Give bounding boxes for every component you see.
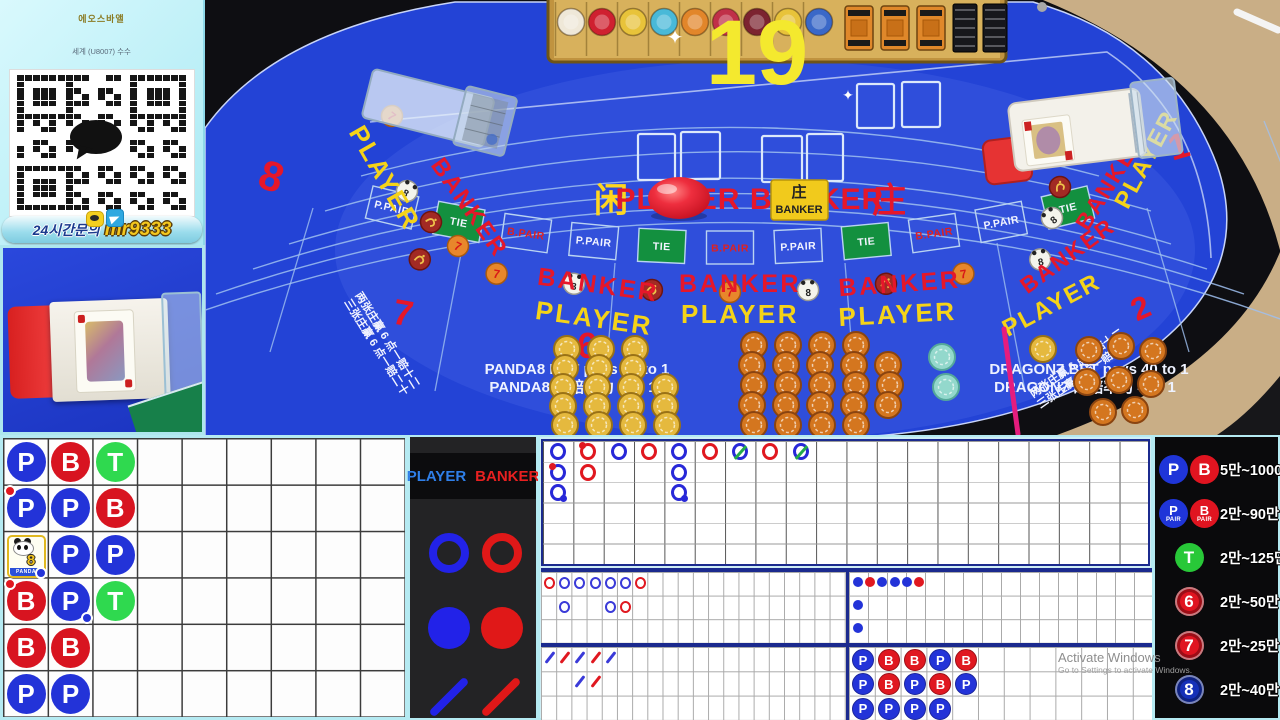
tray-plaque [881,6,909,50]
legend-banker-slash-icon [480,676,521,717]
watermark-line1: Activate Windows [1058,650,1253,665]
ask-road-p: P [929,649,951,671]
big-road-player [550,464,566,481]
big-road-banker [580,443,596,460]
small-road-cell [605,651,616,664]
svg-text:庄: 庄 [791,183,806,201]
bead-cell-p: P [7,442,46,482]
banker-pair-dot [35,567,47,579]
bead-cell-p: P [51,488,90,528]
legend-banker-label: BANKER [475,468,539,485]
mini-bead-cell [902,577,912,587]
big-eye-cell [620,601,631,613]
chat-bubble-icon [70,120,122,154]
big-road-banker [580,464,596,481]
bet-chip [1138,371,1164,397]
telegram-icon [106,209,124,227]
player-marker [648,177,710,221]
bead-cell-panda8: 8PANDA [7,535,46,578]
svg-text:B.PAIR: B.PAIR [711,243,749,255]
banker-plaque: 庄 BANKER [771,180,828,220]
road-legend-panel: PLAYER BANKER [408,435,538,720]
bead-cell-b: B [51,442,90,482]
svg-text:TIE: TIE [653,240,671,253]
bet-chip [1074,369,1100,395]
face-card-art [85,321,125,382]
pair-dot [579,442,586,449]
ask-road-p: P [852,673,874,695]
table-video: P.PAIRTIEB.PAIRP.PAIRTIEB.PAIRP.PAIRTIEB… [205,0,1280,435]
tray-chip-stack [983,4,1007,52]
small-road-cell [545,651,556,664]
mini-bead-cell [853,577,863,587]
legend-banker-dot-icon [481,607,523,649]
bet-chip [875,392,901,418]
player-pair-dot [4,485,16,497]
limit-icon-b: B [1190,455,1219,484]
limit-icon-6: 6 [1175,587,1204,616]
qr-code [10,70,194,216]
legend-banker-ring-icon [482,533,522,573]
mini-bead-cell [853,623,863,633]
watermark-line2: Go to Settings to activate Windows. [1058,665,1253,675]
bead-cell-b: B [7,581,46,621]
bet-limits-panel: PB5만~1000만PPAIRBPAIR2만~90만T2만~125만62만~50… [1153,435,1280,720]
dealing-shoe [49,298,170,402]
promo-panel: 에오스바앨 세계 (U8007) 수수 24시간문의 mr9333 [0,0,205,245]
big-eye-cell [620,577,631,589]
player-pair-dot [4,578,16,590]
big-eye-road [541,572,846,643]
tray-plaque [845,6,873,50]
big-road-player [793,443,809,460]
big-eye-cell [590,577,601,589]
bet-chip [586,412,612,435]
tray-plaque [917,6,945,50]
svg-text:PLAYER: PLAYER [681,299,799,329]
small-road-cell [575,675,586,688]
ask-road-p: P [904,698,926,720]
bet-chip [1090,399,1116,425]
bead-cell-p: P [51,535,90,575]
road-divider-vertical [846,572,849,720]
big-road-player [550,484,566,501]
card-pip [78,315,85,323]
big-road-banker [641,443,657,460]
limit-range: 2만~50만 [1220,591,1279,612]
ask-road-b: B [904,649,926,671]
big-eye-cell [559,601,570,613]
big-eye-cell [559,577,570,589]
svg-text:8: 8 [805,288,812,299]
mini-bead-cell [865,577,875,587]
pair-dot [681,495,688,502]
bet-cell-tie: TIE [638,228,687,263]
bet-chip [654,412,680,435]
svg-text:TIE: TIE [857,235,876,249]
tray-chip-stack [953,4,977,52]
mini-bead-cell [914,577,924,587]
big-road-banker [762,443,778,460]
kakaotalk-icon [86,211,104,227]
ask-road-p: P [852,649,874,671]
limit-icon-p: P [1159,455,1188,484]
bet-chip [809,412,835,435]
big-road-player [671,464,687,481]
svg-text:P.PAIR: P.PAIR [780,240,816,254]
big-road-player [611,443,627,460]
shoe-closeup-video [0,245,205,435]
bead-cell-p: P [7,488,46,528]
limit-range: 2만~90만 [1220,503,1279,524]
mini-bead-cell [890,577,900,587]
limit-range: 5만~1000만 [1220,459,1280,480]
big-eye-cell [544,577,555,589]
big-eye-cell [605,577,616,589]
big-road [541,439,1150,566]
card-pip [125,379,132,387]
promo-subtitle: 세계 (U8007) 수수 [0,46,203,57]
stray-chip [1037,2,1047,12]
sparkle-icon: ✦ [667,27,684,49]
bet-chip [1076,337,1102,363]
small-road-cell [575,651,586,664]
big-road-player [671,484,687,501]
bead-cell-b: B [96,488,135,528]
limit-row: 62만~50만 [1155,579,1278,623]
banker-pair-dot [81,612,93,624]
bet-cell-bpair: B.PAIR [908,213,959,252]
bead-cell-b: B [51,628,90,668]
legend-player-label: PLAYER [407,468,466,485]
bead-cell-b: B [7,628,46,668]
svg-text:BANKER: BANKER [775,204,822,216]
legend-player-dot-icon [428,607,470,649]
big-road-player [671,443,687,460]
small-road-cell [590,675,601,688]
ask-road-p: P [904,673,926,695]
mini-bead-cell [853,600,863,610]
limit-icon-8: 8 [1175,675,1204,704]
big-road-player [550,443,566,460]
baccarat-stream-screen: 에오스바앨 세계 (U8007) 수수 24시간문의 mr9333 [0,0,1280,720]
bet-chip [1140,338,1166,364]
bet-chip [741,412,767,435]
pair-dot [549,463,556,470]
pair-dot [560,495,567,502]
limit-range: 2만~40만 [1220,679,1279,700]
bet-chip [843,412,869,435]
limit-row: PB5만~1000만 [1155,447,1278,491]
tie-slash [734,445,748,460]
bet-chip [1106,367,1132,393]
big-eye-cell [574,577,585,589]
limit-icon-p: PPAIR [1159,499,1188,528]
legend-header: PLAYER BANKER [410,453,536,499]
ask-road-b: B [878,673,900,695]
small-road-cell [590,651,601,664]
bet-chip [1122,397,1148,423]
baccarat-table: P.PAIRTIEB.PAIRP.PAIRTIEB.PAIRP.PAIRTIEB… [205,0,1280,435]
bead-cell-t: T [96,581,135,621]
ask-road-p: P [878,698,900,720]
ask-road-p: P [955,673,977,695]
mini-bead-road [849,572,1152,643]
small-road-cell [560,651,571,664]
ask-road-b: B [878,649,900,671]
ask-road-b: B [955,649,977,671]
bead-cell-p: P [51,674,90,714]
big-eye-cell [635,577,646,589]
promo-title: 에오스바앨 [0,12,203,25]
game-count: 19 [706,2,808,104]
bet-chip [552,412,578,435]
bet-chip [929,344,955,370]
bead-cell-t: T [96,442,135,482]
ask-road-b: B [929,673,951,695]
sparkle-icon: ✦ [842,87,854,103]
contact-banner: 24시간문의 mr9333 [2,216,202,243]
tie-slash [794,445,808,460]
svg-text:BANKER: BANKER [679,270,801,298]
mini-bead-cell [877,577,887,587]
bet-chip [775,412,801,435]
limit-icon-b: BPAIR [1190,499,1219,528]
os-watermark: Activate Windows Go to Settings to activ… [1058,650,1253,675]
bet-chip [933,374,959,400]
bead-plate-grid: PBTPPB8PANDAPPBPTBBPP [3,438,405,717]
bet-cell-tie: TIE [841,222,891,259]
bet-cell-bpair: B.PAIR [707,231,754,264]
bet-cell-ppair: P.PAIR [774,228,823,263]
big-road-player [732,443,748,460]
bet-chip [1108,333,1134,359]
legend-player-ring-icon [429,533,469,573]
bet-chip [620,412,646,435]
ask-road-p: P [929,698,951,720]
svg-text:PLAYER: PLAYER [838,296,957,332]
bead-cell-p: P [7,674,46,714]
limit-icon-t: T [1175,543,1204,572]
big-road-banker [702,443,718,460]
ask-road-p: P [852,698,874,720]
bead-cell-p: P [96,535,135,575]
small-road [541,647,846,720]
limit-row: PPAIRBPAIR2만~90만 [1155,491,1278,535]
big-eye-cell [605,601,616,613]
bead-plate-panel: PBTPPB8PANDAPPBPTBBPP [0,435,408,720]
limit-range: 2만~125만 [1220,547,1280,568]
limit-row: T2만~125만 [1155,535,1278,579]
roads-panel: PBBPBPBPBPPPPP [538,435,1153,720]
bet-chip [1030,336,1056,362]
bead-cell-p: P [51,581,90,621]
banker-cn-label: 庄 [872,182,906,220]
bet-cell-ppair: P.PAIR [569,222,619,259]
face-card [74,309,137,393]
legend-player-slash-icon [428,676,469,717]
